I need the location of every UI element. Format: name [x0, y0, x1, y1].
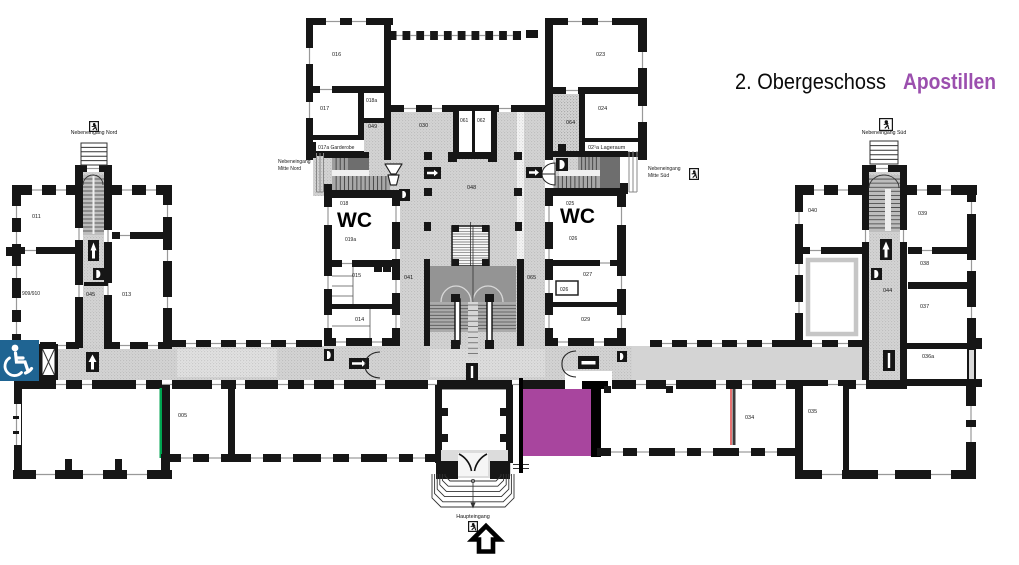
- svg-text:016: 016: [332, 52, 341, 58]
- svg-text:017: 017: [320, 106, 329, 112]
- svg-text:013: 013: [122, 292, 131, 298]
- svg-text:Nebeneingang Nord: Nebeneingang Nord: [71, 130, 118, 136]
- svg-text:040: 040: [808, 208, 817, 214]
- svg-text:064: 064: [566, 120, 575, 126]
- svg-text:044: 044: [883, 288, 892, 294]
- svg-text:049: 049: [368, 124, 377, 130]
- svg-text:029: 029: [581, 317, 590, 323]
- svg-text:023: 023: [596, 52, 605, 58]
- svg-text:011: 011: [32, 214, 41, 220]
- svg-text:061: 061: [460, 118, 469, 124]
- svg-text:039: 039: [918, 211, 927, 217]
- svg-text:065: 065: [527, 275, 536, 281]
- svg-text:Nebeneingang Süd: Nebeneingang Süd: [862, 130, 907, 136]
- svg-text:Mitte Süd: Mitte Süd: [648, 173, 669, 179]
- svg-text:909/910: 909/910: [22, 291, 40, 297]
- svg-text:Mitte Nord: Mitte Nord: [278, 166, 301, 172]
- svg-text:030: 030: [419, 123, 428, 129]
- svg-text:036a: 036a: [922, 354, 935, 360]
- svg-text:034: 034: [745, 415, 754, 421]
- svg-text:WC: WC: [560, 205, 595, 228]
- svg-text:WC: WC: [337, 209, 372, 232]
- svg-text:Nebeneingang: Nebeneingang: [278, 159, 311, 165]
- svg-text:2. Obergeschoss: 2. Obergeschoss: [735, 69, 886, 94]
- svg-text:019a: 019a: [345, 237, 356, 243]
- svg-text:062: 062: [477, 118, 486, 124]
- svg-text:037: 037: [920, 304, 929, 310]
- svg-text:045: 045: [86, 292, 95, 298]
- svg-text:035: 035: [808, 409, 817, 415]
- svg-text:Apostillen: Apostillen: [903, 69, 996, 94]
- svg-text:038: 038: [920, 261, 929, 267]
- svg-text:017a Garderobe: 017a Garderobe: [318, 145, 355, 151]
- svg-text:005: 005: [178, 413, 187, 419]
- svg-text:024: 024: [598, 106, 607, 112]
- svg-text:026: 026: [560, 287, 569, 293]
- svg-text:018: 018: [340, 201, 349, 207]
- svg-text:Nebeneingang: Nebeneingang: [648, 166, 681, 172]
- svg-text:02¹a Lageraum: 02¹a Lageraum: [588, 145, 626, 151]
- svg-text:048: 048: [467, 185, 476, 191]
- svg-text:014: 014: [355, 317, 364, 323]
- svg-text:Haupteingang: Haupteingang: [456, 514, 490, 520]
- svg-text:027: 027: [583, 272, 592, 278]
- svg-text:015: 015: [352, 273, 361, 279]
- svg-text:018a: 018a: [366, 98, 377, 104]
- svg-text:041: 041: [404, 275, 413, 281]
- svg-text:026: 026: [569, 236, 578, 242]
